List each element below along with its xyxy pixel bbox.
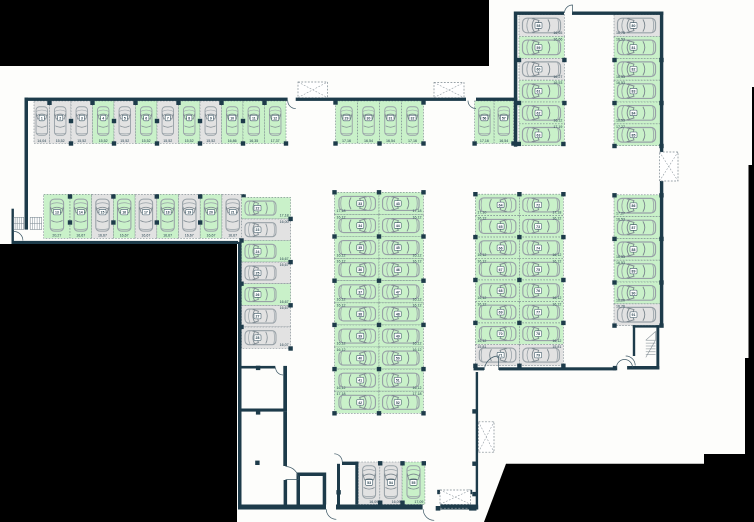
svg-text:16,12: 16,12: [552, 259, 561, 263]
svg-text:16: 16: [122, 211, 126, 215]
svg-text:16,53: 16,53: [616, 119, 625, 123]
svg-text:56: 56: [482, 117, 486, 121]
svg-text:16,53: 16,53: [553, 81, 562, 85]
svg-text:17,18: 17,18: [337, 392, 346, 396]
svg-text:17,37: 17,37: [271, 139, 280, 143]
svg-text:16,67: 16,67: [207, 234, 216, 238]
svg-text:16,12: 16,12: [477, 339, 486, 343]
svg-text:77: 77: [536, 311, 540, 315]
svg-text:16,67: 16,67: [120, 234, 129, 238]
svg-text:23: 23: [256, 228, 260, 232]
svg-text:57: 57: [502, 117, 506, 121]
svg-text:16,53: 16,53: [616, 81, 625, 85]
svg-text:24: 24: [256, 250, 260, 254]
svg-text:81: 81: [632, 46, 636, 50]
svg-text:15,52: 15,52: [185, 139, 194, 143]
svg-text:42: 42: [358, 401, 362, 405]
svg-text:15,52: 15,52: [142, 139, 151, 143]
svg-text:15,52: 15,52: [163, 139, 172, 143]
svg-text:15,52: 15,52: [99, 139, 108, 143]
svg-text:16,12: 16,12: [337, 253, 346, 257]
svg-text:16,12: 16,12: [337, 304, 346, 308]
svg-text:66: 66: [499, 246, 503, 250]
svg-text:16,53: 16,53: [616, 255, 625, 259]
svg-text:16,67: 16,67: [141, 234, 150, 238]
svg-text:44: 44: [396, 224, 400, 228]
svg-text:16,27: 16,27: [553, 75, 562, 79]
svg-text:45: 45: [396, 246, 400, 250]
svg-text:16,12: 16,12: [477, 296, 486, 300]
svg-text:58: 58: [537, 24, 541, 28]
svg-text:74: 74: [536, 246, 540, 250]
svg-text:17,18: 17,18: [337, 209, 346, 213]
svg-text:3: 3: [81, 117, 83, 121]
svg-text:16,67: 16,67: [228, 234, 237, 238]
svg-text:20: 20: [209, 211, 213, 215]
svg-text:16,12: 16,12: [413, 253, 422, 257]
svg-text:16,00: 16,00: [280, 220, 289, 224]
svg-text:15,81: 15,81: [477, 345, 486, 349]
svg-text:16,12: 16,12: [477, 253, 486, 257]
svg-text:16,09: 16,09: [369, 500, 378, 504]
svg-text:18: 18: [166, 211, 170, 215]
svg-text:68: 68: [499, 289, 503, 293]
svg-text:83: 83: [632, 90, 636, 94]
svg-text:11: 11: [252, 117, 256, 121]
svg-text:16,12: 16,12: [337, 298, 346, 302]
svg-text:85: 85: [632, 133, 636, 137]
svg-text:16,53: 16,53: [616, 218, 625, 222]
svg-text:16,12: 16,12: [552, 217, 561, 221]
svg-text:16,12: 16,12: [337, 215, 346, 219]
svg-text:16,35: 16,35: [249, 139, 258, 143]
svg-text:5: 5: [124, 117, 126, 121]
svg-text:17,27: 17,27: [616, 125, 625, 129]
svg-text:50: 50: [396, 357, 400, 361]
svg-text:51: 51: [396, 379, 400, 383]
svg-text:16,12: 16,12: [337, 342, 346, 346]
svg-text:16,12: 16,12: [413, 348, 422, 352]
svg-text:25: 25: [256, 271, 260, 275]
svg-text:19: 19: [187, 211, 191, 215]
svg-text:17,10: 17,10: [477, 210, 486, 214]
svg-text:76: 76: [536, 289, 540, 293]
svg-text:55: 55: [412, 481, 416, 485]
svg-text:16,12: 16,12: [413, 304, 422, 308]
svg-text:91: 91: [632, 313, 636, 317]
svg-text:54: 54: [389, 481, 393, 485]
svg-text:16,53: 16,53: [616, 37, 625, 41]
svg-text:59: 59: [537, 46, 541, 50]
svg-text:86: 86: [632, 204, 636, 208]
svg-text:16,53: 16,53: [616, 75, 625, 79]
svg-text:32: 32: [411, 117, 415, 121]
svg-text:16,12: 16,12: [553, 119, 562, 123]
svg-text:17,16: 17,16: [408, 139, 417, 143]
svg-text:2: 2: [59, 117, 61, 121]
svg-text:16,75: 16,75: [616, 31, 625, 35]
svg-text:16,12: 16,12: [413, 386, 422, 390]
svg-text:33: 33: [358, 202, 362, 206]
svg-text:16,12: 16,12: [413, 342, 422, 346]
svg-text:17,18: 17,18: [280, 214, 289, 218]
svg-text:15,52: 15,52: [56, 139, 65, 143]
svg-text:10: 10: [230, 117, 234, 121]
svg-text:16,12: 16,12: [477, 217, 486, 221]
svg-text:79: 79: [536, 354, 540, 358]
svg-text:31: 31: [389, 117, 393, 121]
svg-text:16,86: 16,86: [228, 139, 237, 143]
svg-text:90: 90: [632, 291, 636, 295]
svg-text:16,12: 16,12: [477, 302, 486, 306]
svg-text:15,81: 15,81: [552, 345, 561, 349]
svg-text:16,12: 16,12: [552, 296, 561, 300]
svg-text:16,67: 16,67: [280, 257, 289, 261]
svg-text:16,66: 16,66: [553, 37, 562, 41]
svg-text:16,53: 16,53: [616, 261, 625, 265]
svg-text:35: 35: [358, 246, 362, 250]
svg-text:43: 43: [396, 202, 400, 206]
svg-text:16,12: 16,12: [337, 348, 346, 352]
svg-text:78: 78: [536, 332, 540, 336]
svg-text:46: 46: [396, 268, 400, 272]
svg-text:16,67: 16,67: [163, 234, 172, 238]
svg-text:16,12: 16,12: [337, 386, 346, 390]
svg-text:30: 30: [367, 117, 371, 121]
svg-text:26: 26: [256, 293, 260, 297]
svg-text:16,12: 16,12: [552, 253, 561, 257]
svg-text:16,09: 16,09: [392, 500, 401, 504]
svg-text:84: 84: [632, 111, 636, 115]
svg-text:70: 70: [499, 332, 503, 336]
svg-text:87: 87: [632, 226, 636, 230]
svg-text:9: 9: [210, 117, 212, 121]
svg-text:16,67: 16,67: [76, 234, 85, 238]
svg-text:17,18: 17,18: [413, 392, 422, 396]
svg-text:16,67: 16,67: [185, 234, 194, 238]
svg-text:16,12: 16,12: [337, 260, 346, 264]
svg-text:39: 39: [358, 335, 362, 339]
svg-text:21: 21: [231, 211, 235, 215]
svg-text:6: 6: [145, 117, 147, 121]
svg-text:17,09: 17,09: [414, 500, 423, 504]
svg-text:15,52: 15,52: [206, 139, 215, 143]
svg-text:16,67: 16,67: [280, 300, 289, 304]
svg-text:14,04: 14,04: [37, 139, 46, 143]
svg-text:89: 89: [632, 270, 636, 274]
svg-text:17,27: 17,27: [616, 211, 625, 215]
svg-text:34: 34: [358, 224, 362, 228]
svg-text:16,12: 16,12: [413, 215, 422, 219]
svg-text:47: 47: [396, 290, 400, 294]
svg-text:16,76: 16,76: [616, 305, 625, 309]
svg-text:64: 64: [499, 203, 503, 207]
svg-text:29: 29: [345, 117, 349, 121]
svg-text:16,12: 16,12: [413, 260, 422, 264]
svg-text:16,07: 16,07: [280, 343, 289, 347]
svg-text:80: 80: [632, 24, 636, 28]
svg-text:16,20: 16,20: [616, 299, 625, 303]
svg-text:16,65: 16,65: [553, 31, 562, 35]
svg-text:62: 62: [537, 111, 541, 115]
svg-text:15: 15: [101, 211, 105, 215]
svg-text:4: 4: [102, 117, 104, 121]
svg-text:16,67: 16,67: [280, 263, 289, 267]
svg-text:60: 60: [537, 68, 541, 72]
svg-text:16,12: 16,12: [477, 259, 486, 263]
svg-text:69: 69: [499, 311, 503, 315]
svg-text:40: 40: [358, 357, 362, 361]
svg-text:16,54: 16,54: [386, 139, 395, 143]
svg-text:22: 22: [256, 207, 260, 211]
svg-text:16,12: 16,12: [552, 339, 561, 343]
svg-text:16,12: 16,12: [413, 298, 422, 302]
svg-text:16,67: 16,67: [280, 306, 289, 310]
svg-text:88: 88: [632, 248, 636, 252]
svg-text:17,16: 17,16: [342, 139, 351, 143]
svg-text:8: 8: [188, 117, 190, 121]
svg-text:41: 41: [358, 379, 362, 383]
svg-text:48: 48: [396, 312, 400, 316]
svg-text:20,27: 20,27: [52, 234, 61, 238]
svg-text:17,18: 17,18: [552, 210, 561, 214]
svg-text:36: 36: [358, 268, 362, 272]
svg-text:16,12: 16,12: [552, 302, 561, 306]
svg-text:82: 82: [632, 68, 636, 72]
svg-text:28: 28: [256, 336, 260, 340]
svg-text:52: 52: [396, 401, 400, 405]
svg-text:27: 27: [256, 315, 260, 319]
svg-text:16,67: 16,67: [98, 234, 107, 238]
svg-text:12: 12: [273, 117, 277, 121]
svg-text:67: 67: [499, 268, 503, 272]
svg-text:7: 7: [167, 117, 169, 121]
svg-text:61: 61: [537, 90, 541, 94]
svg-text:13: 13: [55, 211, 59, 215]
svg-text:37: 37: [358, 290, 362, 294]
svg-text:16,54: 16,54: [364, 139, 373, 143]
svg-text:38: 38: [358, 312, 362, 316]
svg-text:73: 73: [536, 225, 540, 229]
svg-text:17,18: 17,18: [413, 209, 422, 213]
svg-text:16,54: 16,54: [499, 139, 508, 143]
svg-text:49: 49: [396, 335, 400, 339]
svg-text:14: 14: [79, 211, 83, 215]
svg-text:53: 53: [367, 481, 371, 485]
svg-text:65: 65: [499, 225, 503, 229]
svg-text:17,19: 17,19: [553, 125, 562, 129]
svg-text:17,16: 17,16: [480, 139, 489, 143]
svg-text:72: 72: [536, 203, 540, 207]
svg-text:17: 17: [144, 211, 148, 215]
svg-text:63: 63: [537, 133, 541, 137]
svg-text:1: 1: [41, 117, 43, 121]
svg-text:75: 75: [536, 268, 540, 272]
svg-text:71: 71: [499, 354, 503, 358]
svg-text:15,52: 15,52: [120, 139, 129, 143]
svg-text:15,52: 15,52: [77, 139, 86, 143]
